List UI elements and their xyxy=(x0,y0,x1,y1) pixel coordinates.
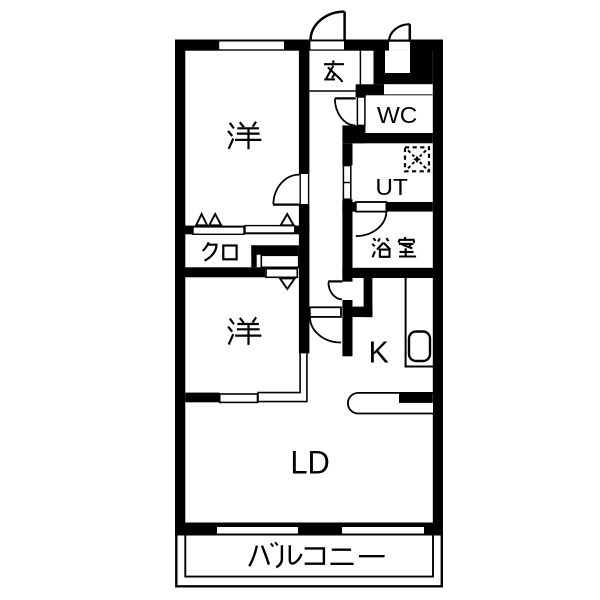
svg-text:UT: UT xyxy=(375,174,408,200)
svg-text:LD: LD xyxy=(290,445,330,481)
svg-text:WC: WC xyxy=(377,102,418,128)
svg-text:K: K xyxy=(369,335,389,369)
